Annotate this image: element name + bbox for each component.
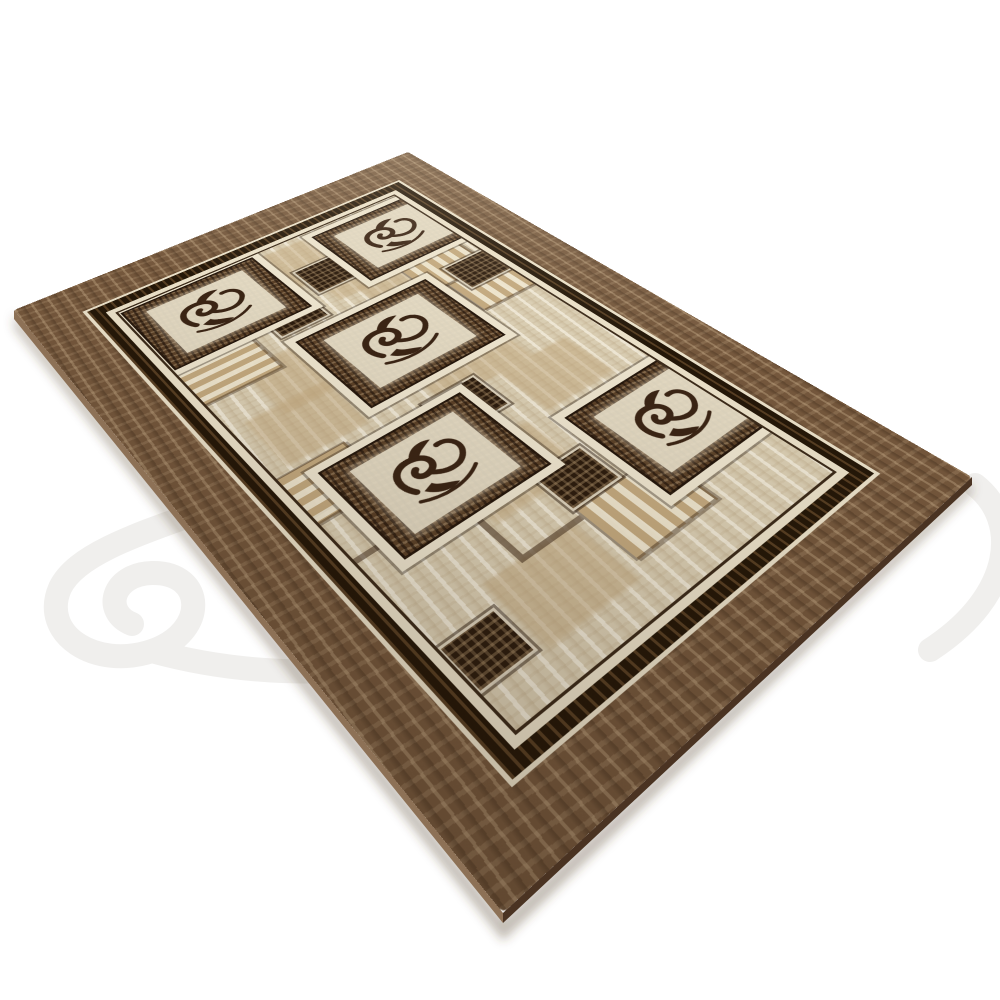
product-photo [0,0,1000,1000]
